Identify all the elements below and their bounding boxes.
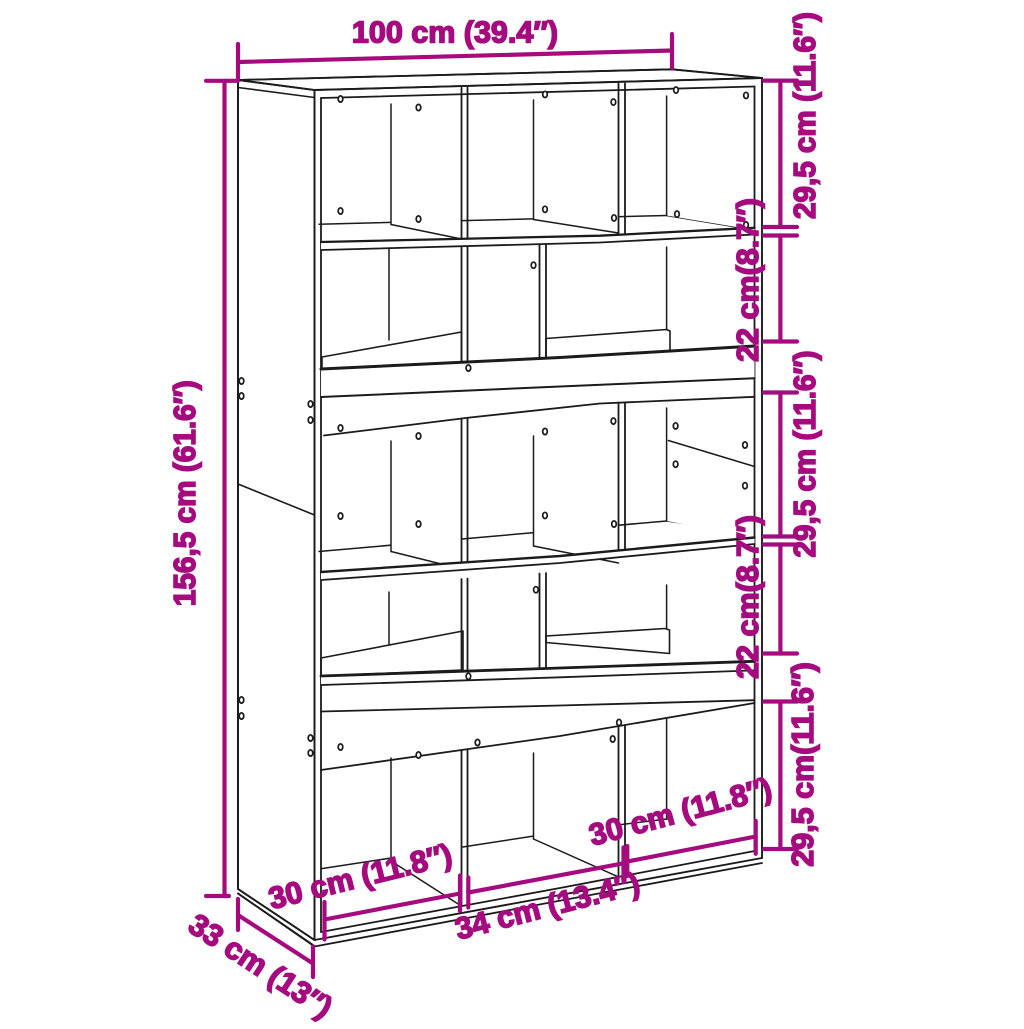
svg-text:29,5 cm (11.6″): 29,5 cm (11.6″) [788,351,822,558]
svg-text:22 cm(8.7″): 22 cm(8.7″) [731,515,765,679]
svg-text:22 cm(8.7″): 22 cm(8.7″) [731,198,765,362]
svg-text:156,5 cm (61.6″): 156,5 cm (61.6″) [168,380,202,606]
svg-text:100 cm (39.4″): 100 cm (39.4″) [352,16,558,50]
svg-text:29,5 cm(11.6″): 29,5 cm(11.6″) [786,662,820,867]
svg-text:29,5 cm (11.6″): 29,5 cm (11.6″) [788,12,822,219]
